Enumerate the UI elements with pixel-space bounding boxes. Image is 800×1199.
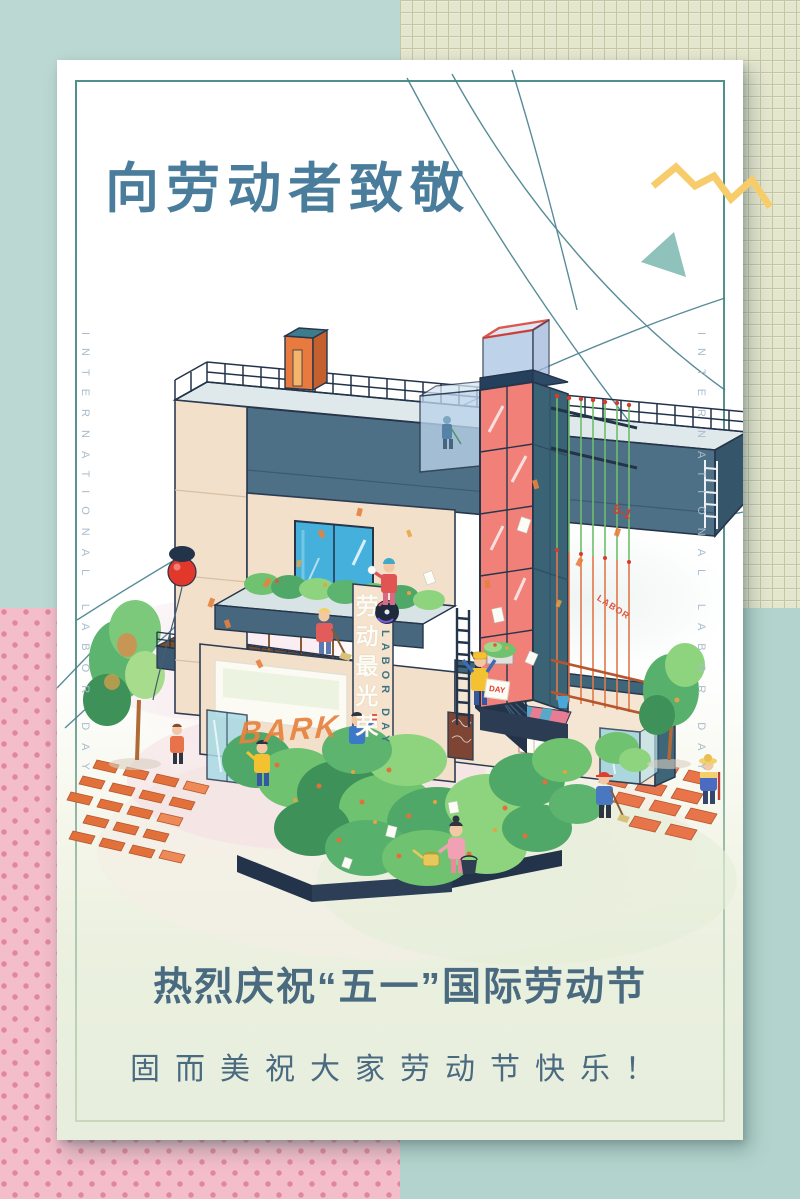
poster-title: 向劳动者致敬 xyxy=(105,144,471,223)
margin-text-right: INTERNATIONAL LABOR DAY xyxy=(695,332,707,894)
poster-scene: 向劳动者致敬 INTERNATIONAL LABOR DAY INTERNATI… xyxy=(0,0,800,1199)
building-sign-chinese: 劳动最光荣 xyxy=(354,594,382,774)
wall-note-sheet: DAY xyxy=(484,678,511,700)
building-sign-english: LABOR DAY xyxy=(379,630,391,770)
blue-bucket xyxy=(557,696,569,708)
rooftop-hut xyxy=(285,328,327,390)
margin-text-left: INTERNATIONAL LABOR DAY xyxy=(79,332,91,894)
graffiti-text: BARK xyxy=(238,708,342,751)
poster-sheet: 向劳动者致敬 INTERNATIONAL LABOR DAY INTERNATI… xyxy=(57,60,743,1140)
slogan-line-2: 固而美祝大家劳动节快乐！ xyxy=(57,1044,743,1088)
slogan-line-1: 热烈庆祝“五一”国际劳动节 xyxy=(57,956,743,1012)
